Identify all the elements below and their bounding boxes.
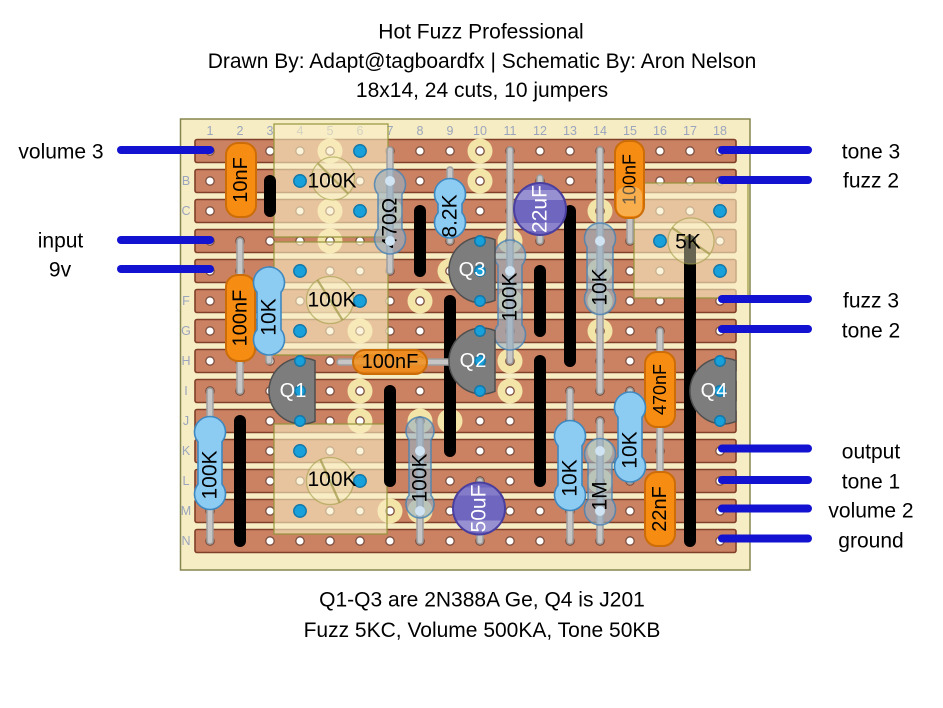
svg-text:C: C xyxy=(181,204,190,218)
svg-text:8.2K: 8.2K xyxy=(439,194,462,237)
svg-text:13: 13 xyxy=(563,124,577,138)
svg-text:G: G xyxy=(181,324,191,338)
svg-text:volume 2: volume 2 xyxy=(828,500,913,523)
svg-text:tone 3: tone 3 xyxy=(842,141,900,164)
svg-text:F: F xyxy=(182,294,190,308)
svg-text:100K: 100K xyxy=(307,170,356,193)
svg-text:22nF: 22nF xyxy=(649,486,671,532)
svg-text:50uF: 50uF xyxy=(468,485,491,533)
svg-text:output: output xyxy=(842,441,901,464)
svg-text:1: 1 xyxy=(207,124,214,138)
svg-text:N: N xyxy=(181,534,190,548)
svg-text:15: 15 xyxy=(623,124,637,138)
svg-text:Fuzz 5KC, Volume 500KA, Tone 5: Fuzz 5KC, Volume 500KA, Tone 50KB xyxy=(304,619,661,642)
svg-text:10K: 10K xyxy=(559,459,582,496)
svg-text:100nF: 100nF xyxy=(362,351,419,373)
svg-text:10K: 10K xyxy=(619,431,642,468)
svg-text:fuzz 3: fuzz 3 xyxy=(843,290,899,313)
svg-text:Drawn By: Adapt@tagboardfx | S: Drawn By: Adapt@tagboardfx | Schematic B… xyxy=(208,50,757,73)
svg-text:100K: 100K xyxy=(307,289,356,312)
svg-text:M: M xyxy=(181,504,191,518)
svg-text:5K: 5K xyxy=(675,231,701,254)
svg-text:10: 10 xyxy=(473,124,487,138)
svg-text:14: 14 xyxy=(593,124,607,138)
svg-text:17: 17 xyxy=(683,124,697,138)
svg-text:volume 3: volume 3 xyxy=(18,141,103,164)
svg-text:fuzz 2: fuzz 2 xyxy=(843,170,899,193)
svg-text:Q3: Q3 xyxy=(459,259,486,281)
svg-text:I: I xyxy=(184,384,187,398)
svg-text:Q1-Q3 are 2N388A Ge, Q4 is J20: Q1-Q3 are 2N388A Ge, Q4 is J201 xyxy=(319,589,645,612)
svg-text:B: B xyxy=(182,174,190,188)
svg-text:22uF: 22uF xyxy=(529,185,552,233)
svg-text:Q4: Q4 xyxy=(701,380,728,402)
svg-text:Q2: Q2 xyxy=(460,350,487,372)
svg-text:100K: 100K xyxy=(409,453,432,502)
svg-text:10K: 10K xyxy=(258,298,281,335)
svg-text:L: L xyxy=(183,474,190,488)
svg-text:2: 2 xyxy=(237,124,244,138)
svg-text:K: K xyxy=(182,444,191,458)
svg-text:100nF: 100nF xyxy=(230,290,252,347)
svg-text:16: 16 xyxy=(653,124,667,138)
svg-text:3: 3 xyxy=(267,124,274,138)
svg-text:9: 9 xyxy=(447,124,454,138)
svg-text:input: input xyxy=(38,230,84,253)
svg-text:18x14, 24 cuts, 10 jumpers: 18x14, 24 cuts, 10 jumpers xyxy=(356,79,608,102)
svg-text:11: 11 xyxy=(504,124,517,138)
svg-text:18: 18 xyxy=(713,124,727,138)
svg-text:100K: 100K xyxy=(499,272,522,321)
svg-text:9v: 9v xyxy=(49,259,72,282)
svg-text:10nF: 10nF xyxy=(230,157,252,203)
svg-text:H: H xyxy=(181,354,190,368)
svg-text:10K: 10K xyxy=(589,268,612,305)
svg-text:100K: 100K xyxy=(199,450,222,499)
svg-text:tone 2: tone 2 xyxy=(842,320,900,343)
svg-text:470nF: 470nF xyxy=(650,364,670,415)
svg-text:100K: 100K xyxy=(307,468,356,491)
svg-text:J: J xyxy=(183,414,189,428)
svg-text:ground: ground xyxy=(838,530,903,553)
svg-text:12: 12 xyxy=(533,124,547,138)
svg-text:tone 1: tone 1 xyxy=(842,471,900,494)
svg-text:Hot Fuzz Professional: Hot Fuzz Professional xyxy=(378,21,583,44)
svg-text:8: 8 xyxy=(417,124,424,138)
svg-text:Q1: Q1 xyxy=(280,380,307,402)
